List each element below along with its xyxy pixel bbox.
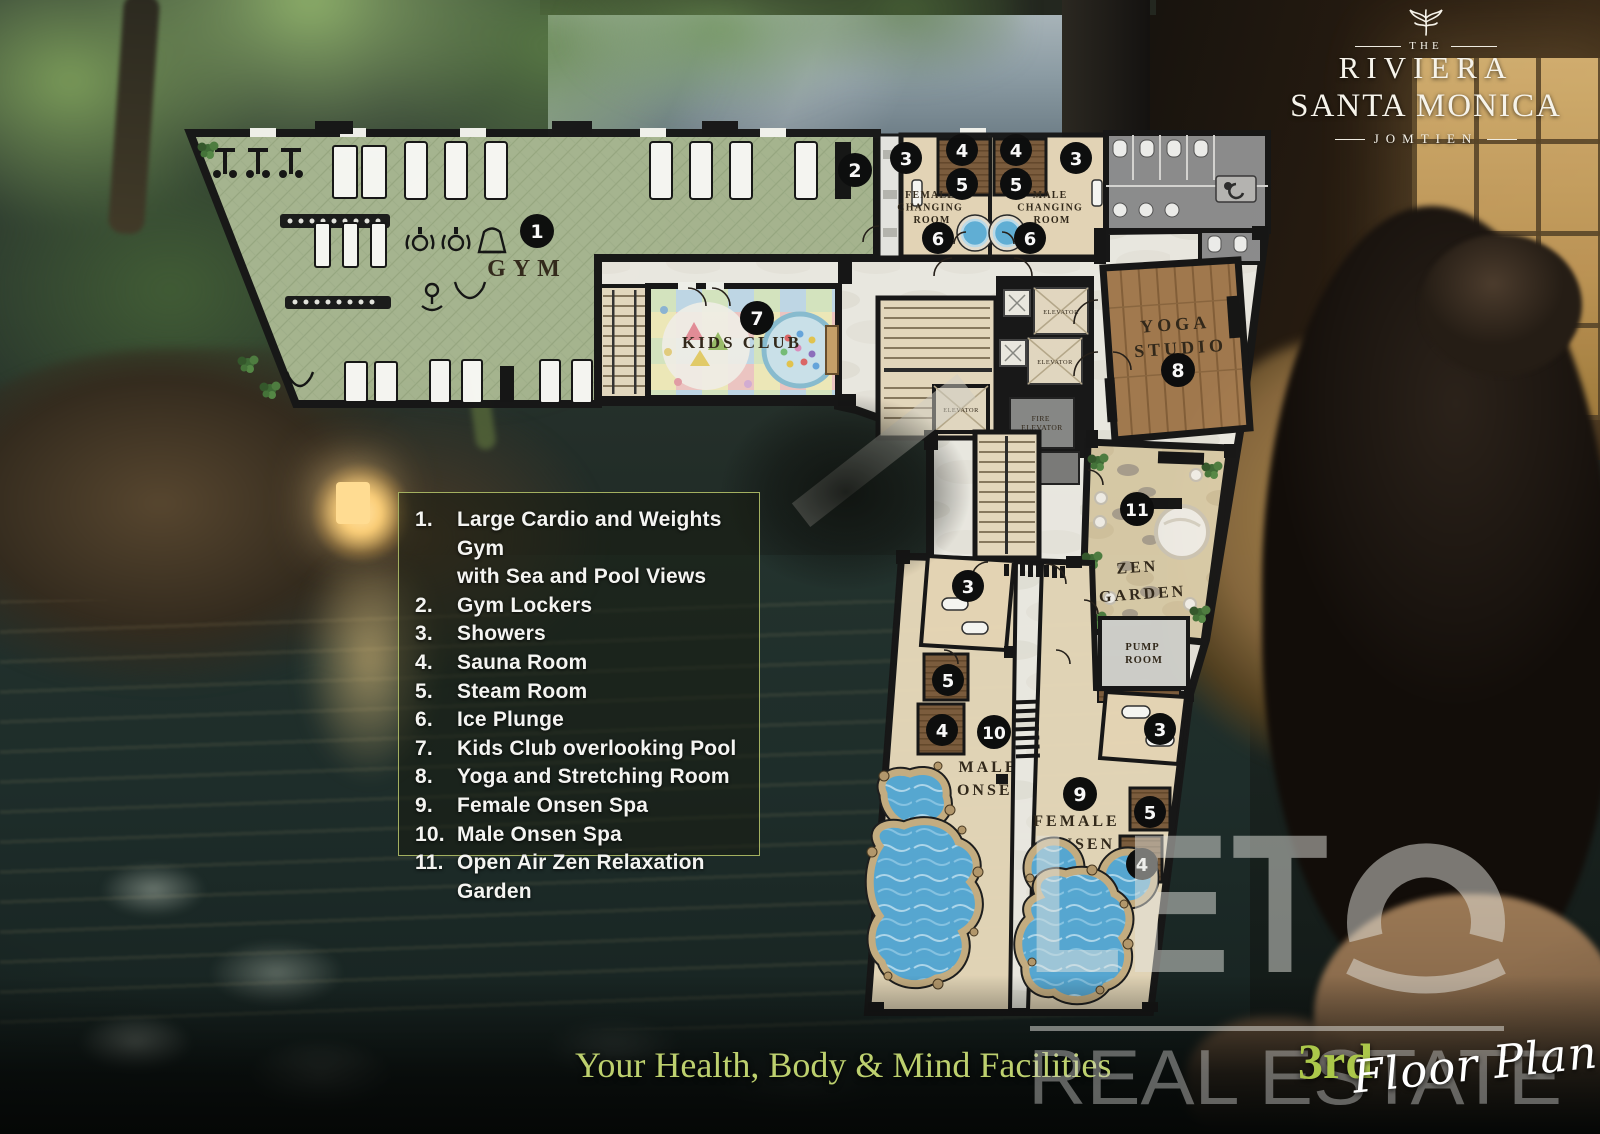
brand-subname: SANTA MONICA xyxy=(1278,88,1574,125)
yoga-studio: YOGA STUDIO xyxy=(1103,260,1250,440)
watermark-leto-text: LET xyxy=(1026,820,1330,1014)
svg-text:4: 4 xyxy=(936,721,949,742)
badge-7: 7 xyxy=(740,301,774,335)
legend-item: 7.Kids Club overlooking Pool xyxy=(415,735,743,764)
label-kids-club: KIDS CLUB xyxy=(682,333,802,352)
badge-4: 4 xyxy=(946,134,978,166)
elevator-car: ELEVATOR xyxy=(1028,338,1082,384)
svg-text:ELEVATOR: ELEVATOR xyxy=(1043,309,1079,316)
badge-3: 3 xyxy=(890,142,922,174)
badge-8: 8 xyxy=(1161,353,1195,387)
brand-location-row: JOMTIEN xyxy=(1278,131,1574,147)
svg-text:9: 9 xyxy=(1073,784,1086,806)
badge-5: 5 xyxy=(1000,168,1032,200)
badge-4: 4 xyxy=(1000,134,1032,166)
svg-text:11: 11 xyxy=(1125,501,1149,521)
badge-11: 11 xyxy=(1120,492,1154,526)
legend-item: 8.Yoga and Stretching Room xyxy=(415,763,743,792)
legend-item: 6.Ice Plunge xyxy=(415,706,743,735)
stairwell-kids xyxy=(600,286,648,398)
svg-text:7: 7 xyxy=(750,308,763,330)
brand-location: JOMTIEN xyxy=(1374,131,1479,147)
legend-item: 1.Large Cardio and Weights Gymwith Sea a… xyxy=(415,506,743,592)
svg-text:4: 4 xyxy=(1010,141,1023,162)
svg-text:6: 6 xyxy=(932,229,945,250)
marketing-floorplan-page: GYM FEMALE CHANGING xyxy=(0,0,1600,1134)
badge-3: 3 xyxy=(1060,142,1092,174)
legend-item: 2.Gym Lockers xyxy=(415,592,743,621)
badge-5: 5 xyxy=(946,168,978,200)
pump-room: PUMP ROOM xyxy=(1098,618,1188,702)
svg-text:10: 10 xyxy=(982,724,1006,744)
legend-item: 10.Male Onsen Spa xyxy=(415,821,743,850)
legend-item: 3.Showers xyxy=(415,620,743,649)
badge-4: 4 xyxy=(926,714,958,746)
badge-9: 9 xyxy=(1063,777,1097,811)
svg-text:5: 5 xyxy=(1010,175,1023,196)
badge-1: 1 xyxy=(520,214,554,248)
badge-3: 3 xyxy=(952,570,984,602)
watermark-divider xyxy=(1030,1026,1504,1031)
stairwell-lower xyxy=(975,432,1039,558)
svg-text:3: 3 xyxy=(900,149,913,170)
svg-text:5: 5 xyxy=(956,175,969,196)
svg-text:1: 1 xyxy=(530,221,543,243)
legend-item: 5.Steam Room xyxy=(415,678,743,707)
svg-text:2: 2 xyxy=(848,160,861,182)
badge-5: 5 xyxy=(932,664,964,696)
legend-item: 11.Open Air Zen Relaxation Garden xyxy=(415,849,743,906)
zen-daybed xyxy=(1156,506,1208,558)
badge-2: 2 xyxy=(838,153,872,187)
svg-text:3: 3 xyxy=(1070,149,1083,170)
facilities-legend: 1.Large Cardio and Weights Gymwith Sea a… xyxy=(398,492,760,856)
badge-6: 6 xyxy=(1014,222,1046,254)
label-gym: GYM xyxy=(487,256,567,282)
svg-text:3: 3 xyxy=(1154,720,1167,741)
svg-text:8: 8 xyxy=(1171,360,1184,382)
legend-item: 9.Female Onsen Spa xyxy=(415,792,743,821)
elevator-car: ELEVATOR xyxy=(1034,288,1088,334)
accessible-icon xyxy=(1216,176,1256,202)
badge-3: 3 xyxy=(1144,713,1176,745)
flourish-icon xyxy=(1404,8,1448,38)
svg-text:6: 6 xyxy=(1024,229,1037,250)
svg-text:ELEVATOR: ELEVATOR xyxy=(1037,359,1073,366)
svg-text:5: 5 xyxy=(942,671,955,692)
kids-club-area: KIDS CLUB xyxy=(648,282,838,398)
brand-logo: THE RIVIERA SANTA MONICA JOMTIEN xyxy=(1278,8,1574,147)
badge-6: 6 xyxy=(922,222,954,254)
svg-text:4: 4 xyxy=(956,141,969,162)
svg-text:3: 3 xyxy=(962,577,975,598)
watermark-o-icon xyxy=(1350,860,1502,985)
brand-name: RIVIERA xyxy=(1278,50,1574,86)
legend-item: 4.Sauna Room xyxy=(415,649,743,678)
badge-10: 10 xyxy=(977,715,1011,749)
